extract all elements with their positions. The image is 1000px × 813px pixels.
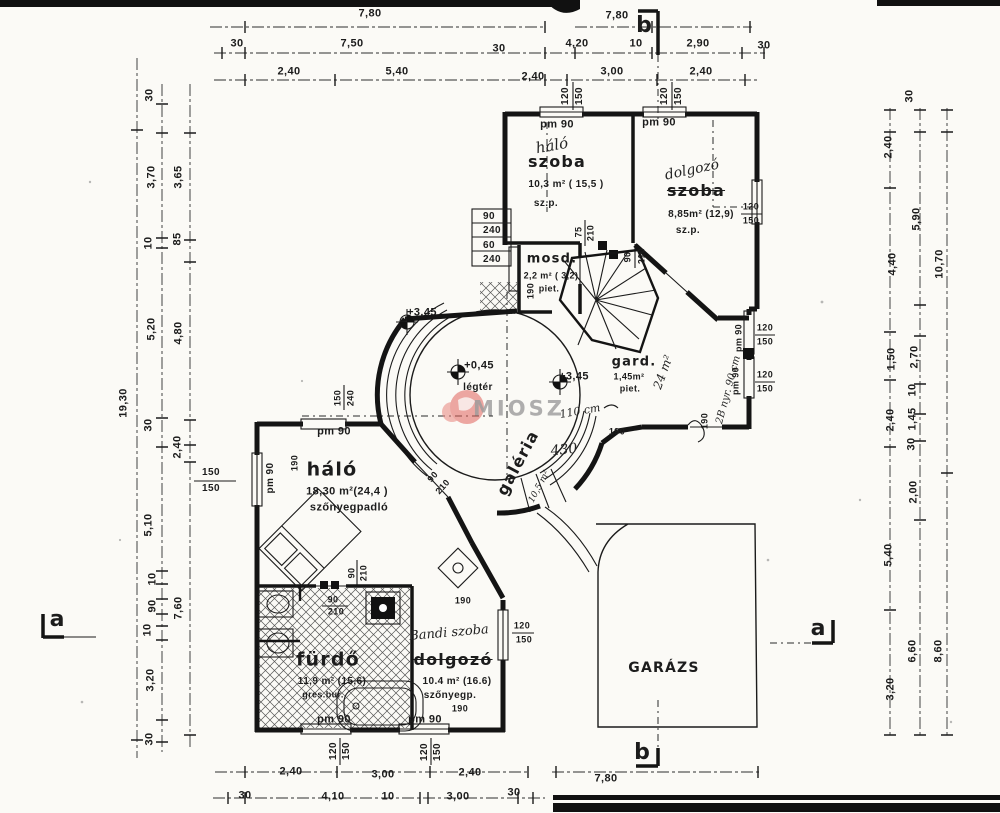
dim-label: 7,80: [594, 774, 617, 785]
section-letter-b-bottom: b: [634, 742, 650, 764]
dim-label: 10.4 m² (16.6): [423, 677, 492, 687]
dim-label: 1,45m²: [614, 373, 645, 382]
dim-label: 150: [516, 636, 532, 645]
dim-label: 3,20: [886, 677, 897, 700]
dim-label: sz.p.: [676, 226, 700, 236]
dim-label: 120: [660, 87, 670, 105]
dim-label: 240: [483, 255, 501, 265]
dim-label: 210: [434, 478, 452, 496]
dim-label: 2,2 m² ( 3,2): [524, 272, 579, 281]
dim-label: 190: [291, 455, 300, 471]
dim-label: 5,20: [147, 317, 158, 340]
dim-label: 7,80: [358, 9, 381, 20]
dim-label: 190: [455, 597, 471, 606]
dim-label: +3,45: [559, 372, 589, 383]
dim-label: 90: [426, 470, 440, 484]
dim-label: 4,40: [888, 252, 899, 275]
dim-label: 2,90: [686, 39, 709, 50]
dim-label: 210: [328, 608, 344, 617]
section-letter-a-right: a: [811, 618, 826, 640]
dim-label: 5,10: [144, 513, 155, 536]
dim-label: szőnyegp.: [424, 691, 477, 701]
dim-label: 11,9 m² (15,6): [298, 677, 366, 687]
dim-label: pm 90: [642, 118, 676, 129]
dim-label: piet.: [620, 385, 641, 394]
dim-label: 150: [433, 743, 443, 761]
dim-label: 2,40: [279, 767, 302, 778]
dim-label: gres.bur.: [302, 691, 344, 700]
dim-label: pm 90: [317, 427, 351, 438]
dim-label: 120: [561, 87, 571, 105]
dim-label: pm 90: [266, 463, 276, 494]
dim-label: pm 90: [317, 715, 351, 726]
dim-label: 210: [360, 565, 369, 581]
dim-label: 10,70: [935, 249, 946, 279]
dim-label: 30: [230, 39, 243, 50]
dim-label: 120: [420, 743, 430, 761]
dim-label: 5,40: [385, 67, 408, 78]
dim-label: 240: [483, 226, 501, 236]
room-szoba-2: szoba: [667, 183, 725, 199]
dim-label: 10: [144, 236, 155, 249]
dim-label: 18,30 m²(24,4 ): [306, 487, 388, 498]
dim-label: 30: [144, 418, 155, 431]
dim-label: 4,80: [174, 321, 185, 344]
dim-label: 3,20: [146, 668, 157, 691]
dim-label: 30: [757, 41, 770, 52]
dim-label: 120: [757, 371, 773, 380]
dim-label: 240: [347, 390, 356, 406]
dim-label: 75: [575, 227, 584, 238]
room-mosdo: mosd.: [527, 253, 577, 266]
dim-label: 5,90: [912, 207, 923, 230]
dim-label: 2,40: [689, 67, 712, 78]
dim-label: 190: [701, 413, 710, 429]
dim-label: +0,45: [464, 361, 494, 372]
galeria-area: 10,5 m²: [528, 469, 552, 504]
room-gard: gard.: [612, 356, 657, 369]
dim-label: 190: [452, 705, 468, 714]
dim-label: pm 90: [408, 715, 442, 726]
section-letter-b-top: b: [636, 15, 652, 37]
dim-label: 90: [148, 599, 159, 612]
room-szoba-1: szoba: [528, 154, 586, 170]
dim-label: 30: [145, 732, 156, 745]
dim-label: 60: [483, 241, 495, 251]
dim-label: 3,00: [446, 792, 469, 803]
handwritten-430: 430: [550, 442, 578, 459]
dim-label: 10: [908, 383, 919, 396]
dim-label: piet.: [539, 285, 560, 294]
dim-label: 2,40: [458, 768, 481, 779]
dim-label: 90: [483, 212, 495, 222]
dim-label: 150: [757, 385, 773, 394]
dim-label: 3,70: [147, 165, 158, 188]
dim-label: 150: [334, 390, 343, 406]
dim-label: 10: [381, 792, 394, 803]
dim-label: 30: [145, 88, 156, 101]
dim-label: 2,70: [910, 345, 921, 368]
dim-label: 8,85m² (12,9): [668, 210, 734, 220]
dim-label: 30: [507, 788, 520, 799]
dim-label: 150: [674, 87, 684, 105]
blueprint-page: 7,807,80b307,50304,20102,90302,405,402,4…: [0, 0, 1000, 813]
dim-label: 3,65: [174, 165, 185, 188]
room-furdo: fürdő: [296, 651, 360, 670]
handwritten-bandi: Bandi szoba: [409, 623, 490, 643]
dim-label: 1,45: [908, 407, 919, 430]
dim-label: 210: [587, 225, 596, 241]
dim-label: pm 90: [540, 120, 574, 131]
dim-label: 8,60: [934, 639, 945, 662]
dim-label: 120: [757, 324, 773, 333]
dim-label: 3,00: [371, 770, 394, 781]
dim-label: 150: [743, 217, 759, 226]
dim-label: 19,30: [119, 388, 130, 418]
dim-label: 30: [905, 89, 916, 102]
dim-label: 150: [202, 468, 220, 478]
dim-label: 10: [143, 623, 154, 636]
dim-label: 2,40: [886, 408, 897, 431]
dim-label: 10,3 m² ( 15,5 ): [528, 180, 603, 190]
dim-label: 150: [342, 742, 352, 760]
dim-label: 10: [629, 39, 642, 50]
dim-label: 2,40: [521, 72, 544, 83]
plan-labels-layer: 7,807,80b307,50304,20102,90302,405,402,4…: [0, 0, 1000, 813]
dim-label: 150: [202, 484, 220, 494]
dim-label: 7,60: [174, 596, 185, 619]
dim-label: 4,20: [565, 39, 588, 50]
room-garazs: GARÁZS: [628, 661, 699, 675]
dim-label: 210: [638, 248, 647, 264]
dim-label: 30: [238, 791, 251, 802]
dim-label: 30: [907, 437, 918, 450]
watermark-text: MIOSZ: [473, 399, 565, 420]
dim-label: szőnyegpadló: [310, 503, 388, 514]
dim-label: 2,40: [277, 67, 300, 78]
dim-label: 120: [743, 203, 759, 212]
dim-label: 2,40: [884, 135, 895, 158]
room-halo: háló: [307, 461, 358, 480]
dim-label: 190: [609, 428, 625, 437]
dim-label: 30: [492, 44, 505, 55]
section-letter-a-left: a: [50, 609, 65, 631]
dim-label: 4,10: [321, 792, 344, 803]
dim-label: 90: [624, 252, 633, 263]
dim-label: pm 90: [735, 324, 744, 352]
handwritten-dolgozo: dolgozó: [664, 157, 721, 182]
dim-label: 90: [348, 568, 357, 579]
dim-label: 90: [328, 596, 339, 605]
dim-label: 150: [757, 338, 773, 347]
room-dolgozo: dolgozó: [413, 652, 492, 668]
dim-label: légtér: [463, 383, 493, 393]
dim-label: 2,40: [173, 435, 184, 458]
dim-label: 120: [514, 622, 530, 631]
dim-label: 150: [575, 87, 585, 105]
dim-label: 10: [148, 572, 159, 585]
dim-label: sz.p.: [534, 199, 558, 209]
handwritten-110cm: 110 cm: [559, 402, 601, 420]
dim-label: 7,80: [605, 11, 628, 22]
dim-label: 190: [527, 283, 536, 299]
dim-label: 2,00: [909, 480, 920, 503]
dim-label: 120: [329, 742, 339, 760]
dim-label: 7,50: [340, 39, 363, 50]
dim-label: 6,60: [908, 639, 919, 662]
dim-label: 1,50: [887, 347, 898, 370]
dim-label: +3,45: [407, 308, 437, 319]
dim-label: 85: [173, 232, 184, 245]
dim-label: 5,40: [884, 543, 895, 566]
dim-label: 3,00: [600, 67, 623, 78]
